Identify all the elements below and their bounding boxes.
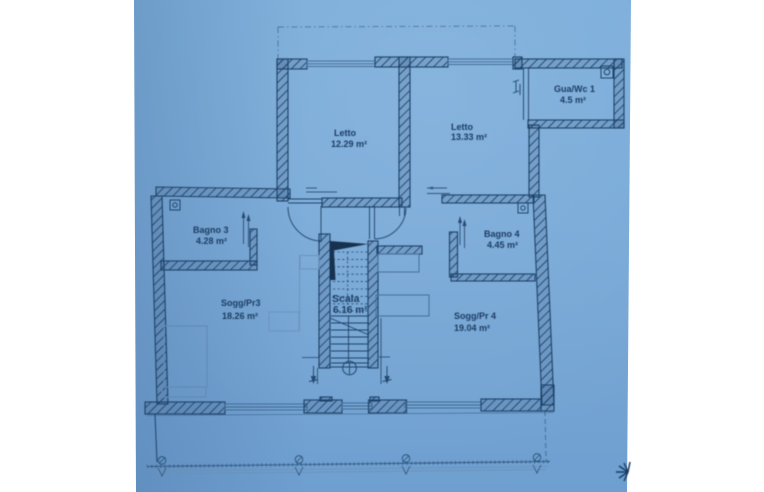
svg-text:Bagno 3: Bagno 3: [193, 225, 229, 235]
svg-text:12.29 m²: 12.29 m²: [331, 139, 367, 149]
svg-text:6.16 m²: 6.16 m²: [333, 305, 368, 316]
svg-text:4.45 m²: 4.45 m²: [487, 240, 518, 250]
svg-text:19.04 m²: 19.04 m²: [454, 323, 490, 333]
svg-text:4.5 m²: 4.5 m²: [560, 95, 586, 105]
svg-text:18.26 m²: 18.26 m²: [222, 311, 258, 321]
svg-text:Sogg/Pr3: Sogg/Pr3: [221, 298, 261, 308]
svg-text:Sogg/Pr 4: Sogg/Pr 4: [454, 311, 496, 321]
svg-text:Gua/Wc 1: Gua/Wc 1: [554, 84, 595, 94]
svg-text:Bagno 4: Bagno 4: [484, 229, 520, 239]
svg-text:4.28 m²: 4.28 m²: [196, 236, 227, 246]
svg-text:Scala: Scala: [332, 293, 360, 305]
svg-text:Letto: Letto: [334, 128, 356, 138]
svg-text:13.33 m²: 13.33 m²: [451, 132, 487, 142]
svg-text:Letto: Letto: [451, 122, 473, 132]
